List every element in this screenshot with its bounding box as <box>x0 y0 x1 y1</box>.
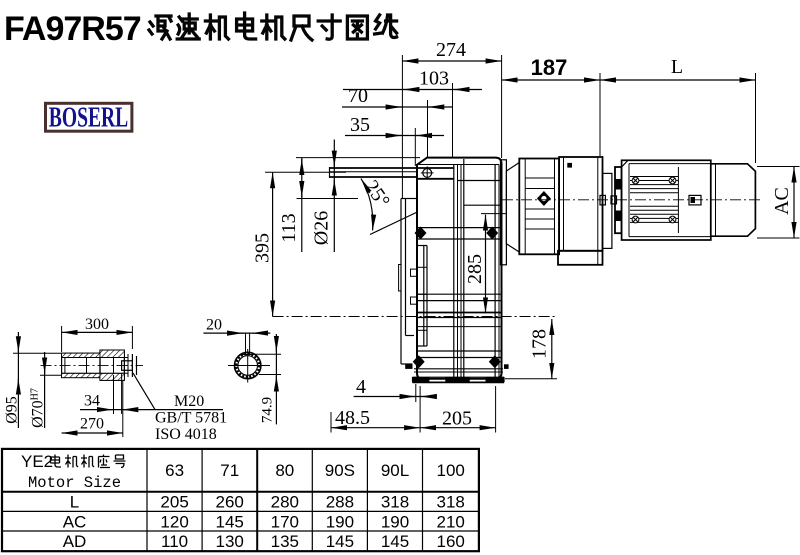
svg-text:Ø26: Ø26 <box>311 211 333 245</box>
svg-text:274: 274 <box>436 39 466 61</box>
svg-text:Motor Size: Motor Size <box>28 474 121 492</box>
svg-text:100: 100 <box>437 461 465 480</box>
svg-text:130: 130 <box>216 532 244 551</box>
svg-text:135: 135 <box>271 532 299 551</box>
svg-text:90L: 90L <box>381 461 409 480</box>
svg-text:260: 260 <box>216 493 244 512</box>
svg-text:L: L <box>70 493 79 512</box>
svg-text:34: 34 <box>84 393 100 410</box>
svg-text:4: 4 <box>356 376 366 398</box>
svg-text:318: 318 <box>437 493 465 512</box>
svg-text:170: 170 <box>271 512 299 531</box>
svg-text:90S: 90S <box>325 461 355 480</box>
svg-text:AD: AD <box>63 532 87 551</box>
svg-text:205: 205 <box>442 408 472 430</box>
svg-text:205: 205 <box>160 493 188 512</box>
svg-text:70: 70 <box>348 85 368 107</box>
svg-text:YE2: YE2 <box>21 452 53 471</box>
svg-text:288: 288 <box>326 493 354 512</box>
svg-text:300: 300 <box>85 316 109 333</box>
svg-text:120: 120 <box>160 512 188 531</box>
svg-text:145: 145 <box>381 532 409 551</box>
svg-text:160: 160 <box>437 532 465 551</box>
svg-text:280: 280 <box>271 493 299 512</box>
svg-text:145: 145 <box>216 512 244 531</box>
svg-text:145: 145 <box>326 532 354 551</box>
svg-text:113: 113 <box>278 213 300 242</box>
svg-text:178: 178 <box>528 329 550 359</box>
svg-text:74.9: 74.9 <box>260 397 276 423</box>
svg-text:210: 210 <box>437 512 465 531</box>
svg-text:285: 285 <box>464 254 486 284</box>
svg-text:ISO 4018: ISO 4018 <box>155 426 217 443</box>
svg-text:GB/T 5781: GB/T 5781 <box>155 410 227 427</box>
svg-text:Ø95: Ø95 <box>4 396 21 424</box>
svg-text:190: 190 <box>326 512 354 531</box>
svg-text:35: 35 <box>350 114 370 136</box>
svg-text:48.5: 48.5 <box>335 407 370 429</box>
svg-text:103: 103 <box>419 68 449 90</box>
svg-text:190: 190 <box>381 512 409 531</box>
svg-text:20: 20 <box>206 317 222 334</box>
svg-text:AC: AC <box>63 512 87 531</box>
svg-text:BOSERL: BOSERL <box>49 102 128 133</box>
svg-text:71: 71 <box>220 461 239 480</box>
svg-text:AC: AC <box>771 187 793 215</box>
svg-text:318: 318 <box>381 493 409 512</box>
svg-text:110: 110 <box>161 532 188 551</box>
svg-text:80: 80 <box>275 461 294 480</box>
svg-text:187: 187 <box>531 55 568 80</box>
svg-text:270: 270 <box>80 416 104 433</box>
svg-text:L: L <box>671 56 683 78</box>
svg-text:395: 395 <box>252 233 274 263</box>
svg-text:63: 63 <box>165 461 184 480</box>
svg-text:M20: M20 <box>174 393 204 410</box>
svg-text:FA97R57: FA97R57 <box>4 10 141 48</box>
